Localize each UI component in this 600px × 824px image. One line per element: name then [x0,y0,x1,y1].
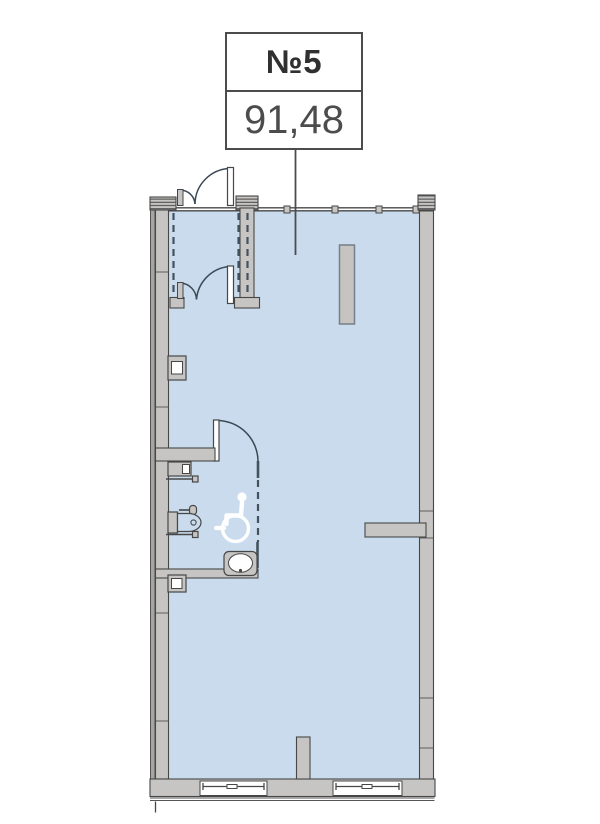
right-wall [420,207,434,790]
right-stub-wall [365,523,426,537]
bottom-window-wall [150,779,435,813]
top-right-wall-cap [418,195,435,210]
mullion-tick [332,206,338,213]
bathroom-top-wall [156,448,216,461]
entry-door-arc [195,169,230,205]
floorplan-page: №5 91,48 [0,0,600,824]
sink-drain [239,569,242,572]
mullion-tick [376,206,382,213]
shelf-inner [183,465,190,474]
toilet [168,512,201,533]
utility-box-inner [172,579,183,589]
left-wall-outer-layer [151,198,156,790]
grab-bar-end [193,532,199,538]
entry-door [178,168,234,206]
vestibule-wall-foot [235,298,260,309]
bottom-stub-wall [297,737,311,779]
unit-area: 91,48 [227,92,361,148]
unit-number: №5 [227,34,361,92]
unit-label-box: №5 91,48 [225,32,363,150]
column [340,245,355,324]
utility-box-inner [172,362,183,375]
entry-door-leaf [228,168,234,206]
vestibule-door-small-leaf [178,283,184,299]
room-area [169,211,420,779]
toilet-tank [168,512,178,533]
mullion-tick [284,206,290,213]
left-wall [156,207,169,779]
entry-door-small-leaf [178,190,184,206]
grab-bar-end [193,476,199,482]
vestibule-door-leaf [228,266,234,304]
vestibule-left-foot [170,298,184,309]
toilet-bowl [178,514,202,532]
sink [224,552,257,576]
top-left-wall-cap [150,197,176,210]
